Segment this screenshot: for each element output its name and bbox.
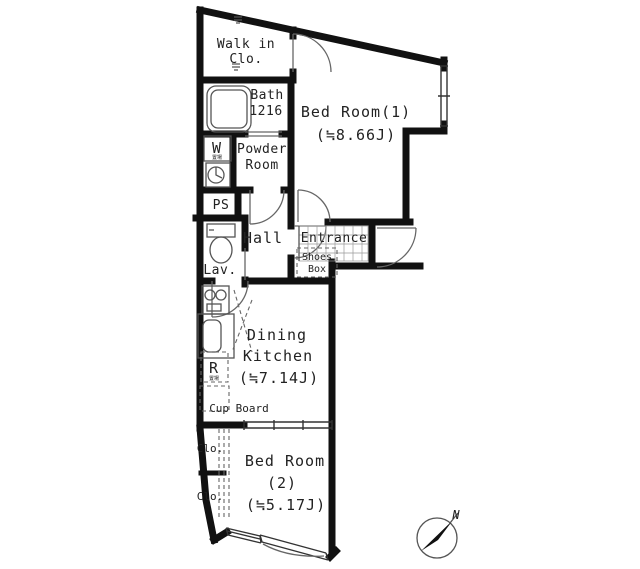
- bedroom1-window: [438, 66, 450, 126]
- bedroom2-label-2: (2): [267, 474, 297, 492]
- compass-needle: [421, 520, 453, 551]
- powder-room-door: [250, 190, 284, 224]
- entrance-label: Entrance: [301, 231, 368, 246]
- floorplan-canvas: N Walk in Clo. Bath 1216 Powder Room PS …: [0, 0, 640, 569]
- bath-sliding-door: [245, 132, 282, 136]
- lavatory-label: Lav.: [203, 263, 236, 278]
- dining-kitchen-label-1: Dining: [247, 326, 307, 344]
- dining-kitchen-label-2: Kitchen: [243, 347, 313, 365]
- floorplan-svg: N Walk in Clo. Bath 1216 Powder Room PS …: [0, 0, 640, 569]
- powder-room-label-1: Powder: [237, 142, 287, 157]
- shoes-box-label-2: Box: [308, 264, 326, 275]
- powder-room-label-2: Room: [245, 158, 278, 173]
- bath-size-label: 1216: [249, 104, 282, 119]
- room-labels: Walk in Clo. Bath 1216 Powder Room PS Ha…: [197, 37, 411, 514]
- bedroom2-size-label: (≒5.17J): [246, 496, 326, 514]
- bedroom1-door: [298, 190, 330, 222]
- water-heater: [206, 163, 230, 187]
- walkin-closet-label-1: Walk in: [217, 37, 275, 52]
- bedroom1-size-label: (≒8.66J): [316, 126, 396, 144]
- hall-label: Hall: [243, 229, 283, 247]
- washer-sub-label: 置場: [212, 154, 222, 161]
- bedroom1-label: Bed Room(1): [301, 103, 411, 121]
- shoes-box-label-1: Shoes: [302, 252, 332, 263]
- bedroom2-label-1: Bed Room: [245, 452, 325, 470]
- kitchen-stove: [202, 286, 229, 314]
- front-door: [377, 228, 416, 267]
- compass: N: [417, 508, 460, 558]
- compass-north-label: N: [451, 508, 460, 522]
- bathtub: [207, 86, 251, 132]
- toilet: [207, 224, 235, 263]
- fridge-label: R: [209, 359, 219, 377]
- cup-board-label: Cup Board: [209, 402, 269, 415]
- fridge-sub-label: 置場: [209, 375, 219, 382]
- walkin-closet-label-2: Clo.: [229, 52, 262, 67]
- pipe-space-label: PS: [213, 198, 230, 213]
- bath-label: Bath: [250, 88, 283, 103]
- closet2-label: Clo.: [197, 490, 224, 503]
- bedroom2-corner-window: [226, 528, 328, 560]
- dining-kitchen-size-label: (≒7.14J): [239, 369, 319, 387]
- closet1-label: Clo.: [197, 442, 224, 455]
- partition-sliding-window: [244, 420, 332, 430]
